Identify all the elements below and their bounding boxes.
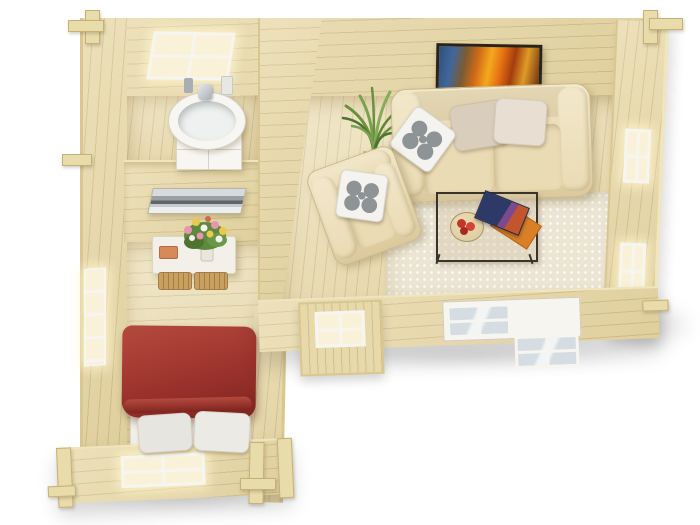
- front-double-window: [442, 297, 581, 342]
- red-duvet: [122, 325, 257, 418]
- west-wall: [80, 18, 127, 456]
- corner-log-west-mid: [62, 154, 92, 166]
- faucet: [198, 84, 212, 100]
- duvet-fold: [124, 396, 252, 413]
- washbasin: [168, 92, 246, 150]
- bedroom-corner-post-right: [277, 438, 295, 499]
- sofa-cushion-beige-2: [493, 97, 548, 147]
- entrance-door: [298, 300, 385, 377]
- front-wall-corner-log: [642, 300, 668, 312]
- flower-bouquet: [170, 210, 240, 264]
- corner-log-top-left: [68, 20, 104, 32]
- sofa: [390, 83, 592, 202]
- armchair-floral-cushion: [335, 169, 389, 223]
- fruit-3: [460, 227, 468, 235]
- toiletry-bottle-2: [221, 76, 233, 95]
- cabin-floor-plan-render: [0, 0, 700, 525]
- bed-pillow-left: [137, 412, 194, 454]
- toiletry-bottle-1: [184, 78, 193, 93]
- wicker-basket-left: [158, 272, 192, 290]
- front-window-right-sash: [514, 334, 579, 369]
- east-window-1: [623, 129, 651, 184]
- bedroom-corner-log-end: [48, 485, 76, 497]
- basin-bowl: [178, 101, 236, 141]
- wicker-basket-right: [194, 272, 228, 290]
- bedroom-front-window: [120, 453, 205, 489]
- bed-pillow-right: [193, 411, 251, 454]
- bedroom-corner-post-left: [56, 447, 74, 508]
- door-window: [314, 310, 365, 348]
- corner-log-top-right: [649, 18, 683, 30]
- bathroom-window: [146, 31, 235, 80]
- vanity-door-split: [208, 149, 209, 169]
- bedroom-side-window: [84, 267, 106, 367]
- front-window-left-sash: [446, 303, 511, 338]
- wing-corner-post: [248, 442, 264, 504]
- wing-corner-log-end: [240, 478, 276, 490]
